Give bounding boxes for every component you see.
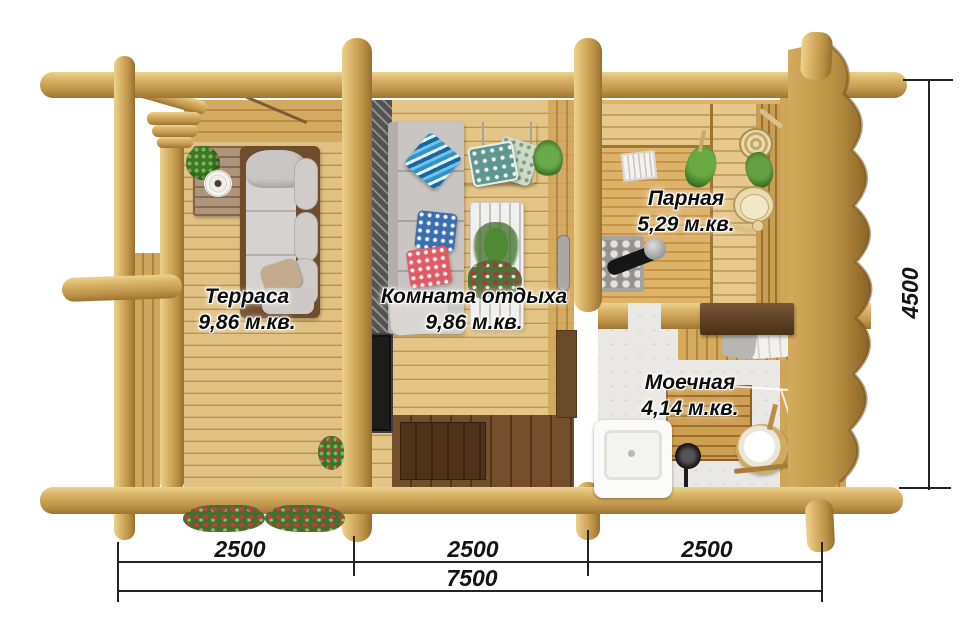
dim-segment-3: 2500 xyxy=(681,537,732,561)
room-area: 9,86 м.кв. xyxy=(198,310,295,336)
dimension-tick xyxy=(899,487,951,489)
bottom-right-log-stub xyxy=(805,499,836,552)
shower-drain xyxy=(628,450,635,457)
terrace-lounge-wall-post xyxy=(342,38,372,542)
terrace-sofa-bolster xyxy=(294,158,318,210)
room-label-steam: Парная 5,29 м.кв. xyxy=(637,186,734,238)
dim-total-width: 7500 xyxy=(446,566,497,590)
room-area: 9,86 м.кв. xyxy=(381,310,567,336)
top-wall-log xyxy=(40,72,907,98)
room-label-terrace: Терраса 9,86 м.кв. xyxy=(198,284,295,336)
terrace-plate xyxy=(204,170,232,197)
curved-end-wall xyxy=(788,42,912,498)
dim-depth: 4500 xyxy=(898,267,922,318)
dimension-tick xyxy=(117,542,119,602)
terrace-sofa-bolster xyxy=(294,212,318,262)
terrace-plant-tuft xyxy=(318,436,344,470)
lounge-floor-mat xyxy=(400,422,486,480)
pillow-red-dots xyxy=(406,245,453,288)
bottom-wall-log xyxy=(40,487,903,514)
room-label-wash: Моечная 4,14 м.кв. xyxy=(641,370,738,422)
stove-chute-cap xyxy=(644,238,666,260)
wooden-basin-lid xyxy=(740,194,769,220)
dimension-line-depth xyxy=(928,80,930,490)
room-name: Комната отдыха xyxy=(381,284,567,310)
shower-head xyxy=(675,443,701,469)
dim-segment-2: 2500 xyxy=(447,537,498,561)
pergola-post xyxy=(160,112,184,490)
dimension-tick xyxy=(903,79,953,81)
corner-notch-beam xyxy=(147,112,201,125)
wall-log-mid-left xyxy=(598,303,628,329)
cabinet-dark xyxy=(556,330,577,418)
room-area: 5,29 м.кв. xyxy=(637,212,734,238)
dim-segment-1: 2500 xyxy=(214,537,265,561)
room-name: Парная xyxy=(637,186,734,212)
steam-vent-grille xyxy=(621,150,658,181)
corner-notch-beam xyxy=(152,125,198,137)
terrace-top-wall-band xyxy=(184,100,344,146)
corner-notch-beam xyxy=(157,137,193,148)
flower-box xyxy=(265,505,345,532)
flower-box xyxy=(183,505,265,532)
dimension-tick xyxy=(587,530,589,576)
dimension-tick xyxy=(353,536,355,576)
dimension-tick xyxy=(821,542,823,602)
pillow-blue-dots xyxy=(414,210,458,252)
sauna-ladle-bowl xyxy=(752,220,764,232)
room-name: Моечная xyxy=(641,370,738,396)
lounge-corner-plant xyxy=(533,140,563,178)
door-handle xyxy=(557,235,570,291)
handle-log xyxy=(62,274,183,302)
sauna-floor-plan: Терраса 9,86 м.кв. Комната отдыха 9,86 м… xyxy=(0,0,960,640)
room-area: 4,14 м.кв. xyxy=(641,396,738,422)
pillow-teal-dots xyxy=(467,140,519,187)
room-label-lounge: Комната отдыха 9,86 м.кв. xyxy=(381,284,567,336)
room-name: Терраса xyxy=(198,284,295,310)
top-right-log-stub xyxy=(800,31,833,81)
lounge-steam-wall-post xyxy=(574,38,602,312)
wall-shelf xyxy=(700,303,794,335)
